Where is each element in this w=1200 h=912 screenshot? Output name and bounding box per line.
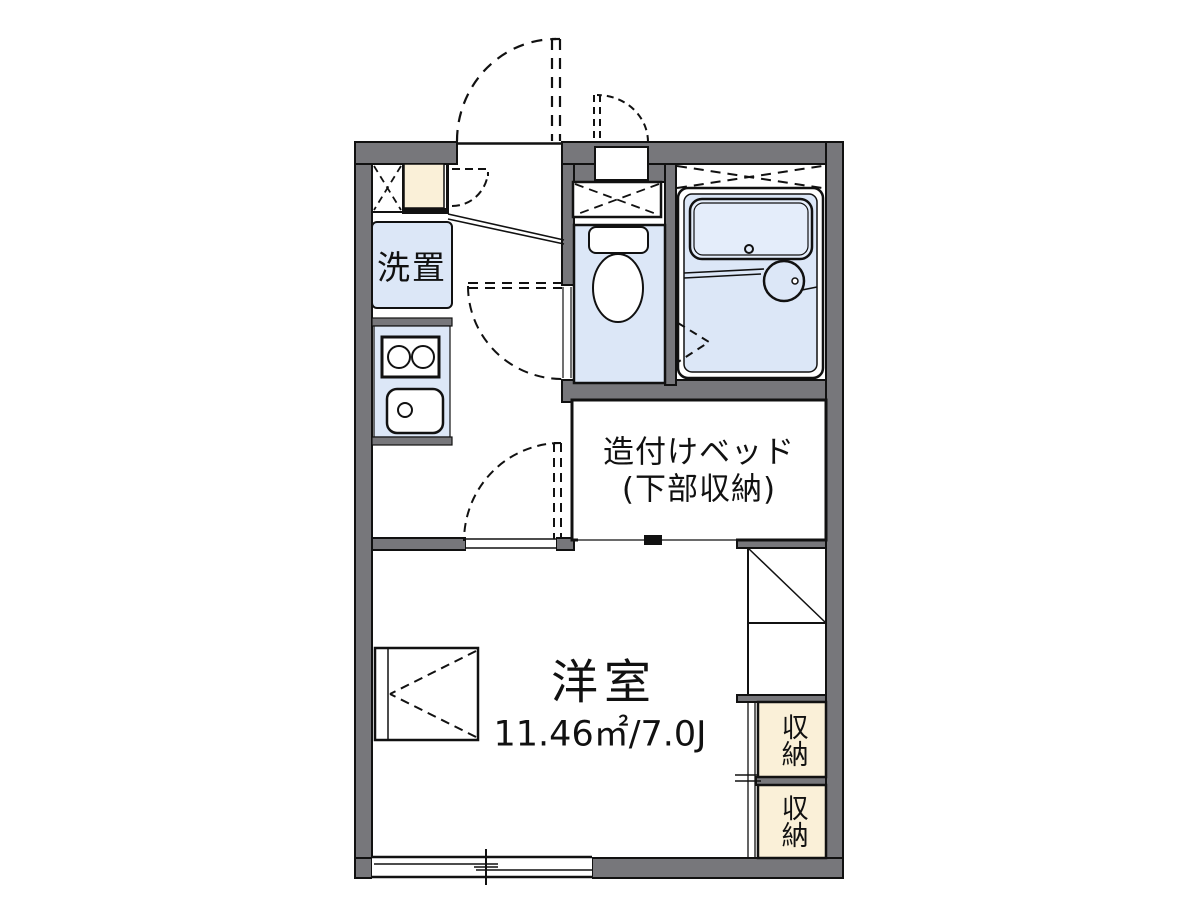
entry-floor <box>404 164 444 208</box>
toilet-bowl <box>593 254 643 322</box>
floor-plan-drawing <box>0 0 1200 912</box>
wall-right <box>826 142 843 878</box>
main-room-door-arc <box>464 443 561 541</box>
kitchen-counter-top-bar <box>372 318 452 326</box>
toilet-tank <box>589 227 648 253</box>
entrance-door-arc <box>457 39 556 141</box>
entry-step-diagonal <box>448 214 564 244</box>
main-room-name: 洋室 <box>551 644 657 713</box>
wash-basin-drain-icon <box>792 278 798 284</box>
floor-plan: 洗置 造付けベッド (下部収納) 洋室 11.46㎡/7.0J 収納 収納 <box>0 0 1200 912</box>
bed-bottom-post <box>644 535 662 545</box>
storage-lower-label: 収納 <box>777 794 806 848</box>
kitchen-counter-bottom-bar <box>372 437 452 445</box>
wall-bottom-right <box>592 858 843 878</box>
main-room-size: 11.46㎡/7.0J <box>494 706 707 757</box>
washer-label: 洗置 <box>377 241 447 289</box>
entry-step-edge <box>402 208 446 214</box>
bed-label-line1: 造付けベッド <box>603 434 795 471</box>
meter-box-door-arc <box>597 95 648 142</box>
entrance-door <box>457 39 560 141</box>
main-room-door <box>464 443 561 552</box>
entry-side-line <box>446 164 449 214</box>
toilet-doorway <box>563 287 571 378</box>
bathroom-shelf-x-icon <box>677 166 822 188</box>
kitchen <box>372 318 452 445</box>
main-room-door-leaf <box>464 443 561 541</box>
stove-burner-right-icon <box>412 346 434 368</box>
entry-cabinet-door <box>452 169 488 206</box>
stove-burner-left-icon <box>388 346 410 368</box>
meter-box-door <box>594 95 648 142</box>
bottom-window <box>372 849 592 885</box>
kitchen-sink <box>387 389 443 433</box>
bed-label-line2: (下部収納) <box>622 471 776 508</box>
bathroom <box>677 166 823 378</box>
wall-left <box>355 142 372 878</box>
wall-bottom-left-stub <box>355 858 372 878</box>
wall-toilet-bath-divider <box>665 164 676 385</box>
meter-box <box>595 147 648 180</box>
wall-hall-room-left <box>372 538 466 550</box>
toilet-door-arc <box>468 286 562 379</box>
bathtub <box>690 199 812 259</box>
wall-top-left <box>355 142 457 164</box>
entrance <box>457 39 648 180</box>
toilet-door <box>468 283 562 379</box>
storage-upper-label: 収納 <box>777 713 806 767</box>
sink-drain-icon <box>398 403 412 417</box>
counter-space <box>748 623 826 695</box>
entry-cabinet-door-arc <box>452 173 488 206</box>
